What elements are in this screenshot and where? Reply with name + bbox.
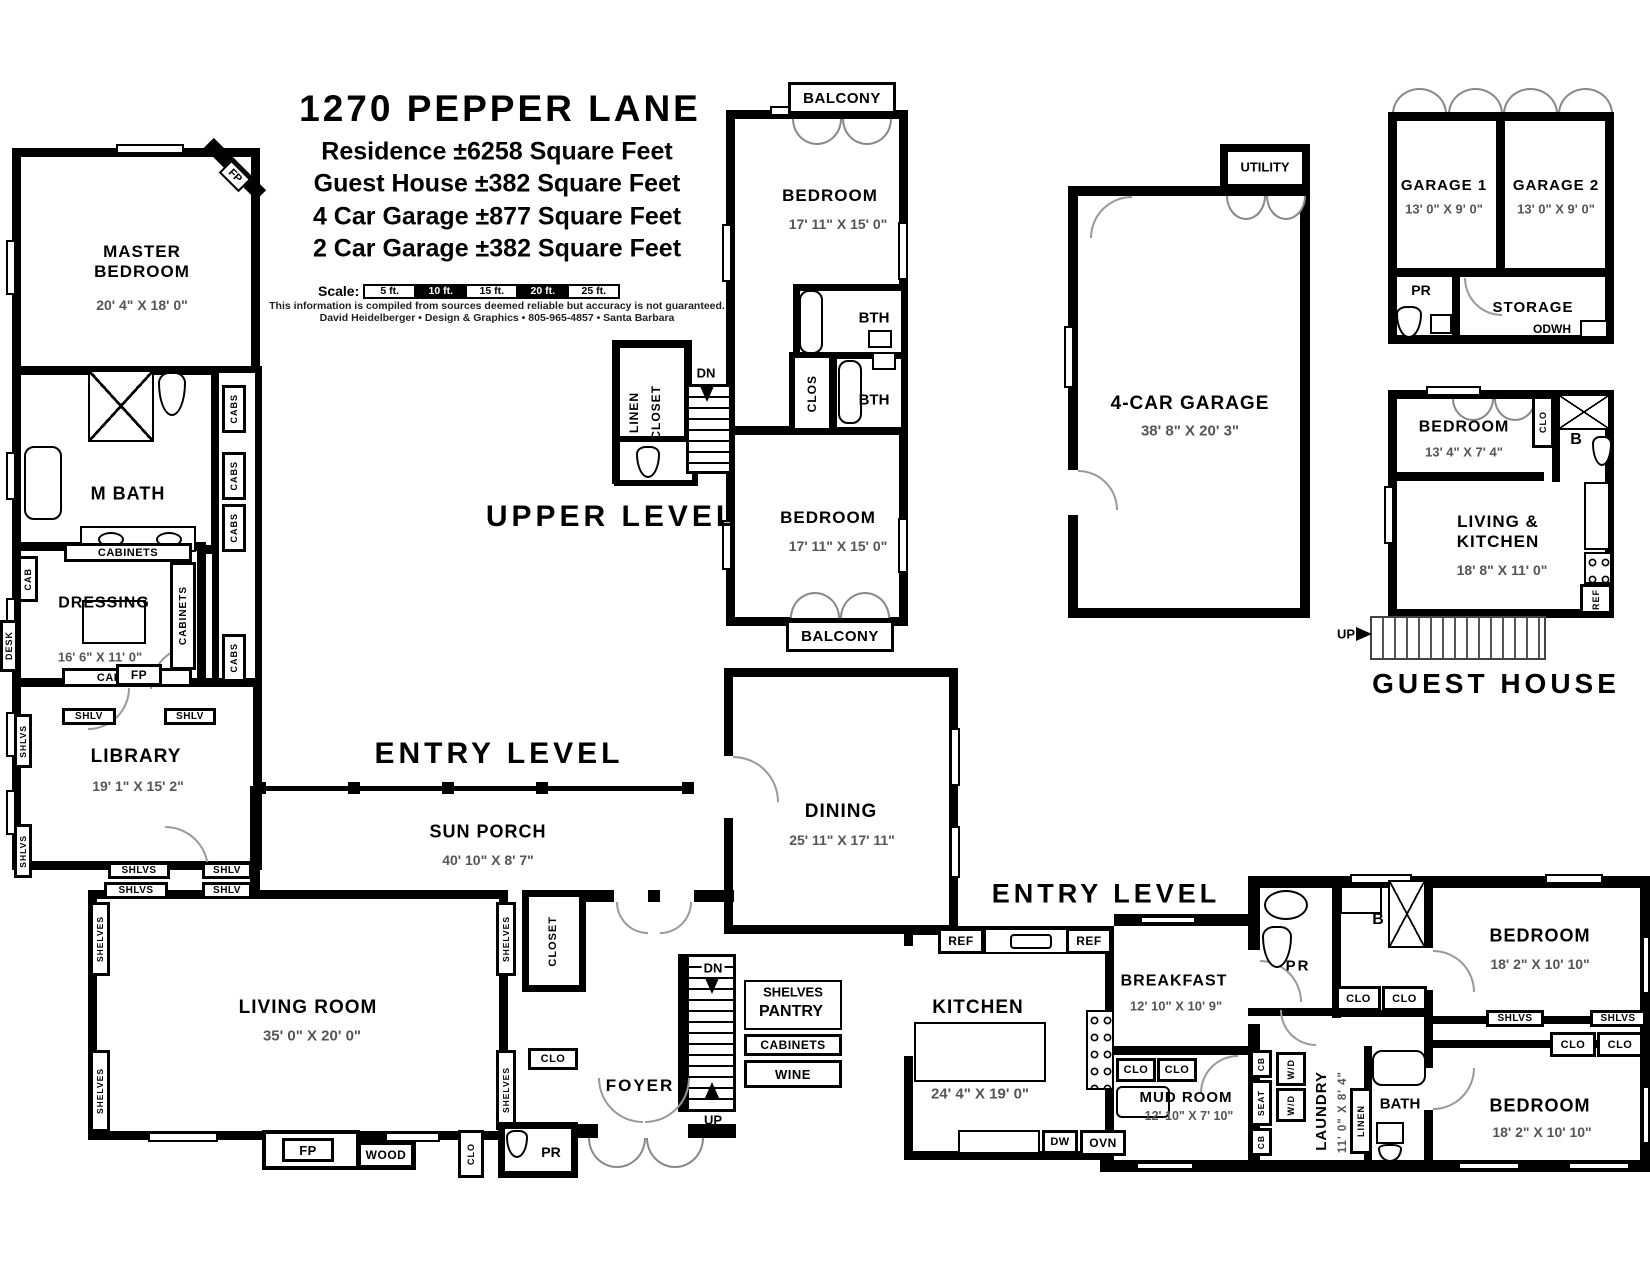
breakfast-label: BREAKFAST [1121, 973, 1228, 992]
kitchen-label: KITCHEN [932, 997, 1023, 1019]
dressing-dims: 16' 6" X 11' 0" [58, 650, 142, 665]
window [6, 452, 16, 500]
garage-divider-wall [1496, 112, 1505, 272]
window [1458, 1162, 1520, 1170]
sink-icon [1376, 1122, 1404, 1144]
dn-label: DN [702, 961, 725, 976]
cabs-label: CABS [222, 504, 246, 552]
window [722, 224, 732, 282]
garage-2-label: GARAGE 2 [1513, 177, 1599, 195]
scale-seg-5ft: 5 ft. [363, 284, 416, 299]
clo-label: CLO [1116, 1058, 1156, 1082]
shlv-label: SHLV [164, 708, 216, 725]
porch-rail [254, 786, 694, 791]
window [1545, 874, 1603, 884]
front-door-arc [645, 1078, 690, 1123]
dw-label: DW [1042, 1130, 1078, 1154]
shelves-label: SHELVES [90, 1050, 110, 1132]
dining-label: DINING [805, 801, 878, 823]
pantry-label: PANTRY [759, 1003, 823, 1021]
clo-label: CLO [458, 1130, 484, 1178]
bathtub-icon [799, 290, 823, 354]
hall-north-wall [584, 890, 734, 902]
sink-icon [872, 352, 896, 370]
cabinets-label: CABINETS [64, 543, 192, 562]
window [1642, 1086, 1650, 1144]
right-arrow-icon [1356, 627, 1372, 641]
clo-label: CLO [1597, 1032, 1643, 1057]
kitchen-island [914, 1022, 1046, 1082]
ref-label: REF [1066, 928, 1112, 954]
ovn-label: OVN [1080, 1130, 1126, 1156]
window [1064, 326, 1074, 388]
scale-seg-20ft: 20 ft. [516, 284, 569, 299]
desk-label: DESK [0, 620, 18, 672]
shlvs-label: SHLVS [14, 714, 32, 768]
door-arc [1280, 1010, 1316, 1046]
library-dims: 19' 1" X 15' 2" [92, 778, 184, 794]
bedroom-east-1-label: BEDROOM [1490, 925, 1591, 946]
title-line-4car: 4 Car Garage ±877 Square Feet [313, 203, 681, 232]
master-bedroom-dims: 20' 4" X 18' 0" [96, 297, 188, 313]
library-label: LIBRARY [91, 746, 182, 768]
wood-label: WOOD [356, 1140, 416, 1170]
clo-label: CLO [1382, 986, 1427, 1011]
shlv-label: SHLV [202, 862, 252, 879]
sun-porch-label: SUN PORCH [429, 821, 546, 842]
page-title: 1270 PEPPER LANE [299, 88, 701, 130]
window [950, 728, 960, 786]
window [1136, 1162, 1194, 1170]
clos-label: CLOS [796, 362, 828, 426]
shelves-label: SHELVES [496, 902, 516, 976]
shlv-label: SHLV [202, 882, 252, 899]
entry-level-label: ENTRY LEVEL [374, 737, 623, 771]
porch-step-arc [646, 1138, 704, 1168]
down-arrow-icon [705, 978, 719, 994]
garage-door-arc [1392, 88, 1447, 114]
scale-seg-15ft: 15 ft. [465, 284, 518, 299]
cabinets-label: CABINETS [170, 562, 196, 670]
m-bath-label: M BATH [91, 483, 166, 504]
guest-bedroom-dims: 13' 4" X 7' 4" [1425, 445, 1503, 460]
floor-plan: 1270 PEPPER LANE Residence ±6258 Square … [0, 0, 1650, 1275]
clo-label: CLO [1532, 396, 1554, 448]
four-car-garage-dims: 38' 8" X 20' 3" [1141, 423, 1239, 440]
porch-post [536, 782, 548, 794]
pr-wall [1452, 277, 1460, 339]
upper-level-label: UPPER LEVEL [486, 500, 738, 534]
door-gap [1068, 470, 1078, 515]
sink-icon [1264, 890, 1308, 920]
guest-bath-label: B [1570, 431, 1582, 449]
door-gap [1424, 948, 1433, 990]
cabs-label: CABS [222, 452, 246, 500]
garage-door-arc [1558, 88, 1613, 114]
wall-stub [576, 1124, 598, 1138]
clo-label: CLO [528, 1048, 578, 1070]
up-arrow-icon [705, 1082, 719, 1098]
bedroom-east-2-dims: 18' 2" X 10' 10" [1492, 1124, 1591, 1140]
door-arc [1433, 1068, 1475, 1110]
pantry-shelves-label: SHELVES [763, 985, 823, 1000]
closet-label: CLOSET [538, 904, 568, 978]
title-line-residence: Residence ±6258 Square Feet [321, 138, 672, 167]
clo-label: CLO [1157, 1058, 1197, 1082]
garage-door-arc [1448, 88, 1503, 114]
bath-label: BATH [1380, 1096, 1421, 1113]
storage-label: STORAGE [1493, 299, 1574, 317]
kitchen-sink [1010, 934, 1052, 949]
shlv-label: SHLV [62, 708, 116, 725]
door-arc [660, 902, 692, 934]
sun-porch-dims: 40' 10" X 8' 7" [442, 852, 534, 868]
shlvs-label: SHLVS [1486, 1010, 1544, 1027]
pr-label: PR [1286, 958, 1311, 975]
bth-label: BTH [859, 392, 890, 409]
door-gap [660, 890, 694, 902]
guest-counter [1584, 482, 1610, 550]
door-gap [724, 756, 733, 818]
living-kitchen-dims: 18' 8" X 11' 0" [1457, 562, 1548, 578]
ref-label: REF [1580, 584, 1612, 614]
cooktop-icon [1086, 1010, 1114, 1090]
linen-label: LINEN [1350, 1088, 1372, 1154]
shower-icon [88, 370, 154, 442]
fp-label: FP [282, 1138, 334, 1162]
clo-label: CLO [1336, 986, 1381, 1011]
credit-text: David Heidelberger • Design & Graphics •… [320, 312, 675, 324]
scale-label: Scale: [318, 283, 359, 299]
balcony-label: BALCONY [786, 620, 894, 652]
window [6, 240, 16, 295]
shlvs-label: SHLVS [1590, 1010, 1646, 1027]
door-gap [614, 890, 648, 902]
dining-dims: 25' 11" X 17' 11" [789, 832, 895, 848]
laundry-label: LAUNDRY [1308, 1058, 1334, 1164]
upper-bedroom-1-dims: 17' 11" X 15' 0" [789, 216, 888, 232]
window [1568, 1162, 1630, 1170]
seat-label: SEAT [1250, 1080, 1272, 1126]
wing-west-wall [1248, 876, 1260, 950]
door-arc [1200, 1055, 1238, 1093]
up-label: UP [1337, 627, 1355, 642]
window [116, 144, 184, 154]
dressing-label: DRESSING [58, 595, 150, 614]
wine-label: WINE [744, 1060, 842, 1088]
sink-icon [1430, 314, 1452, 334]
window [950, 826, 960, 878]
stove-icon [1584, 552, 1612, 584]
bth-label: BTH [859, 310, 890, 327]
bedroom-east-1-dims: 18' 2" X 10' 10" [1490, 956, 1589, 972]
shlvs-label: SHLVS [14, 824, 32, 878]
window [898, 222, 908, 280]
door-gap [904, 946, 913, 1056]
window [1384, 486, 1394, 544]
shelves-label: SHELVES [90, 902, 110, 976]
cb-label: CB [1250, 1050, 1272, 1078]
upper-bedroom-2-dims: 17' 11" X 15' 0" [789, 538, 888, 554]
garage-2-dims: 13' 0" X 9' 0" [1517, 202, 1595, 217]
living-room-label: LIVING ROOM [239, 997, 378, 1019]
garage-row-wall [1392, 268, 1610, 277]
four-car-garage-label: 4-CAR GARAGE [1111, 393, 1270, 415]
cabs-label: CABS [222, 385, 246, 433]
window [1642, 936, 1650, 994]
scale-bar: Scale: 5 ft. 10 ft. 15 ft. 20 ft. 25 ft. [318, 283, 620, 299]
sink-icon [1340, 886, 1382, 914]
scale-seg-25ft: 25 ft. [567, 284, 620, 299]
door-arc [1433, 950, 1475, 992]
shelves-label: SHELVES [496, 1050, 516, 1130]
breakfast-dims: 12' 10" X 10' 9" [1130, 999, 1222, 1014]
bedroom-east-2-label: BEDROOM [1490, 1095, 1591, 1116]
balcony-label: BALCONY [788, 82, 896, 114]
b-label: B [1372, 911, 1384, 929]
pr-label: PR [1411, 282, 1430, 298]
kitchen-dims: 24' 4" X 19' 0" [931, 1086, 1029, 1103]
disclaimer-text: This information is compiled from source… [269, 300, 725, 312]
sink-icon [868, 330, 892, 348]
porch-post [682, 782, 694, 794]
dn-label: DN [697, 366, 716, 381]
shower-icon [1558, 394, 1610, 430]
door-arc [616, 902, 648, 934]
upper-bedroom-2-label: BEDROOM [780, 508, 876, 528]
guest-house-label: GUEST HOUSE [1372, 668, 1620, 700]
title-line-guest-house: Guest House ±382 Square Feet [314, 170, 681, 199]
shlvs-label: SHLVS [104, 882, 168, 899]
utility-label: UTILITY [1240, 160, 1289, 175]
cab-label: CAB [18, 556, 38, 602]
bathtub-icon [1372, 1050, 1426, 1086]
clo-label: CLO [1550, 1032, 1596, 1057]
mudroom-north-wall [1114, 1046, 1248, 1055]
closet-label: CLOSET [642, 352, 670, 472]
hall-wall [1332, 1010, 1433, 1017]
cb-label: CB [1250, 1128, 1272, 1156]
washer-dryer-label: W/D [1276, 1088, 1306, 1122]
master-bedroom-label: MASTER BEDROOM [94, 242, 190, 282]
library-room [12, 678, 262, 870]
living-room-dims: 35' 0" X 20' 0" [263, 1028, 361, 1045]
wall-stub [688, 1124, 736, 1138]
garage-1-label: GARAGE 1 [1401, 177, 1487, 195]
cabinets-label: CABINETS [744, 1034, 842, 1056]
scale-seg-10ft: 10 ft. [414, 284, 467, 299]
shower-icon [1388, 880, 1426, 948]
mud-room-dims: 12' 10" X 7' 10" [1145, 1109, 1234, 1123]
window [1426, 386, 1481, 396]
upper-bedroom-1-label: BEDROOM [782, 186, 878, 206]
window [148, 1132, 218, 1142]
mud-room-label: MUD ROOM [1140, 1089, 1233, 1107]
bathtub-icon [24, 446, 62, 520]
cabs-label: CABS [222, 634, 246, 682]
garage-door-arc [1503, 88, 1558, 114]
porch-post [348, 782, 360, 794]
ref-label: REF [938, 928, 984, 954]
washer-dryer-label: W/D [1276, 1052, 1306, 1086]
guest-staircase [1370, 616, 1546, 660]
pr-label: PR [541, 1144, 560, 1160]
porch-post [442, 782, 454, 794]
guest-bedroom-label: BEDROOM [1419, 419, 1510, 438]
window [1140, 916, 1196, 924]
entry-level-label-2: ENTRY LEVEL [992, 879, 1221, 910]
title-line-2car: 2 Car Garage ±382 Square Feet [313, 235, 681, 264]
odwh-label: ODWH [1533, 322, 1571, 336]
down-arrow-icon [700, 386, 714, 402]
window [898, 518, 908, 573]
water-heater-icon [1580, 320, 1608, 338]
front-door-arc [598, 1078, 643, 1123]
guest-divider-wall [1392, 472, 1544, 481]
living-kitchen-label: LIVING & KITCHEN [1457, 512, 1540, 552]
garage-1-dims: 13' 0" X 9' 0" [1405, 202, 1483, 217]
shlvs-label: SHLVS [108, 862, 170, 879]
library-fireplace-label: FP [116, 664, 162, 686]
porch-step-arc [588, 1138, 646, 1168]
kitchen-counter [958, 1130, 1040, 1154]
